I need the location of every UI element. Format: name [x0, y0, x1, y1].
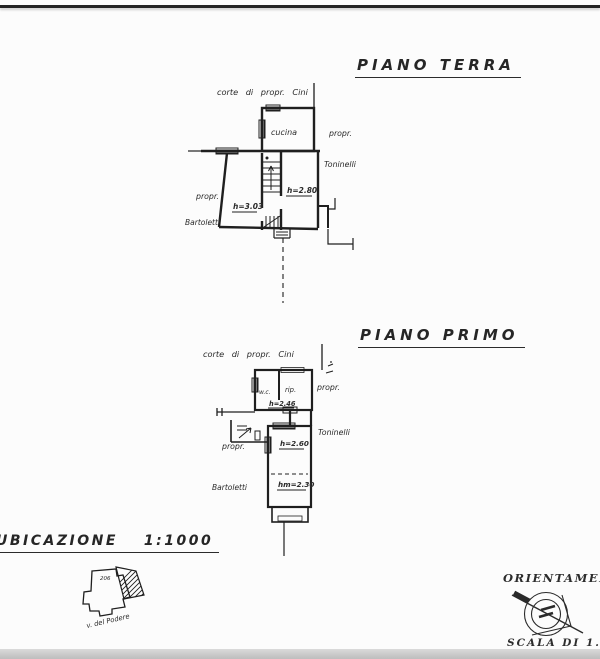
scale-caption: SCALA DI 1.200 — [507, 637, 600, 649]
ground-courtyard-label: corte di propr. Cini — [217, 87, 309, 97]
ground-right-room-height: h=2.80 — [287, 186, 317, 195]
map-title-ubicazione: UBICAZIONE1:1000 — [0, 533, 219, 553]
ground-kitchen-label: cucina — [271, 128, 297, 137]
parcel-number-label: 206 — [100, 576, 111, 582]
first-main-room-height-upper: h=2.60 — [280, 439, 309, 448]
location-map-drawing: 206 v. del Podere — [75, 562, 180, 640]
ground-left-room-height: h=3.03 — [233, 202, 263, 211]
scan-artifact-top-line — [0, 5, 600, 8]
first-rip-label: rip. — [285, 386, 296, 394]
compass-rose-icon — [507, 586, 589, 644]
plan-title-piano-primo: PIANO PRIMO — [358, 326, 525, 348]
ground-neighbor-right-name: Toninelli — [324, 160, 357, 169]
ground-floor-plan-drawing: corte di propr. Cini cucina propr. Tonin… — [183, 78, 418, 308]
scan-artifact-bottom-band — [0, 649, 600, 659]
orientation-title: ORIENTAMENTO — [503, 571, 600, 585]
ground-neighbor-right-propr: propr. — [328, 129, 352, 138]
first-neighbor-left-name: Bartoletti — [212, 483, 248, 492]
first-main-room-height-lower: hm=2.30 — [278, 480, 314, 489]
first-courtyard-label: corte di propr. Cini — [203, 349, 295, 359]
parcel-hatching — [95, 567, 170, 607]
ubicazione-scale: 1:1000 — [144, 533, 213, 549]
first-wc-label: w.c. — [259, 389, 271, 396]
location-map-outline — [83, 567, 170, 616]
ubicazione-word: UBICAZIONE — [0, 533, 118, 549]
ground-neighbor-left-propr: propr. — [195, 192, 219, 201]
first-floor-plan-drawing: corte di propr. Cini w.c. rip. h=2.46 pr… — [195, 342, 380, 560]
first-neighbor-left-propr: propr. — [221, 442, 245, 451]
first-rip-height: h=2.46 — [269, 400, 296, 408]
plan-title-piano-terra: PIANO TERRA — [355, 56, 521, 78]
compass-geometry — [512, 593, 583, 636]
scanned-plan-sheet: PIANO TERRA — [0, 0, 600, 659]
first-neighbor-right-propr: propr. — [316, 383, 340, 392]
ground-neighbor-left-name: Bartoletti — [185, 218, 221, 227]
first-neighbor-right-name: Toninelli — [318, 428, 351, 437]
